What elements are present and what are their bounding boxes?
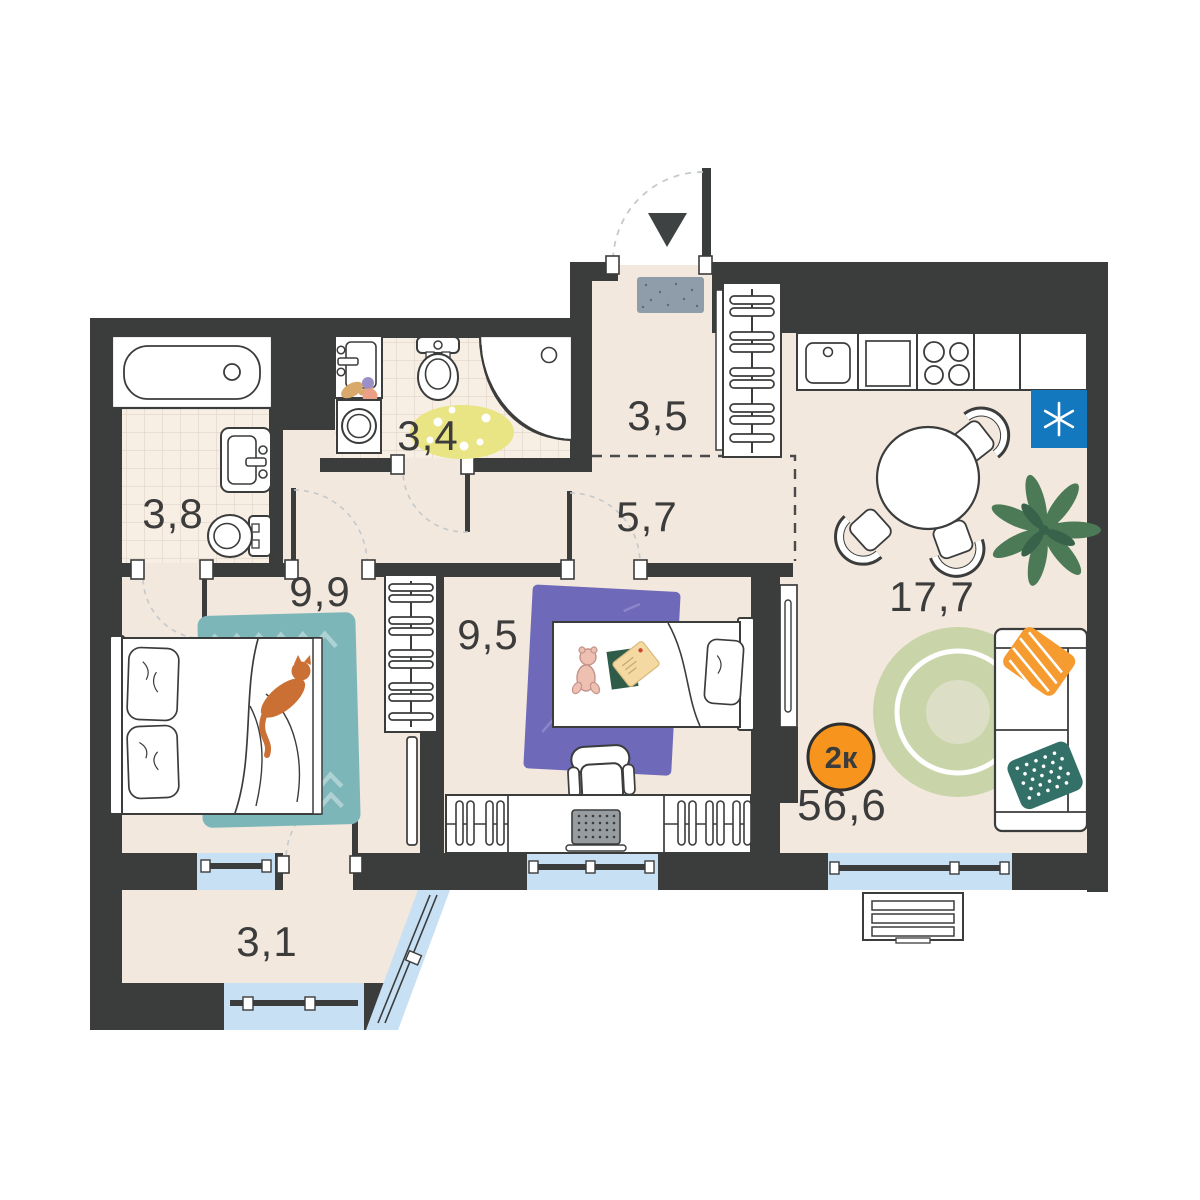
type-badge-label: 2к [825,740,858,775]
single-bed [553,618,754,730]
floorplan-svg: 3,8 3,4 3,5 5,7 9,9 9,5 17,7 3,1 2к 56,6 [0,0,1200,1200]
hall-wardrobe [716,283,781,457]
balcony-window [224,983,364,1030]
bedroom-door-leaf [291,488,296,565]
label-corridor: 5,7 [616,493,677,540]
ac-unit [863,893,963,943]
entrance-arrow-icon [648,213,687,247]
cutting-board [866,341,910,386]
label-entry-hall: 3,5 [627,392,688,439]
desk-chair [567,744,636,802]
pillow [704,639,744,705]
kids-room-door-leaf [567,491,572,565]
bathtub [112,336,272,408]
dining-table [877,427,979,529]
pillow [127,725,179,799]
kitchen-sink [806,343,850,383]
label-ensuite-bathroom: 3,8 [142,490,203,537]
kids-room-window [527,853,658,890]
bedroom-window [197,853,275,890]
label-bathroom: 3,4 [397,412,458,459]
laptop [566,810,626,851]
label-balcony: 3,1 [236,918,297,965]
label-kitchen-living: 17,7 [889,573,975,620]
label-bedroom: 9,9 [289,568,350,615]
toilet [208,515,271,557]
living-room-window [828,853,1012,890]
doormat [637,277,704,313]
tall-cabinet-handle [785,600,791,712]
floorplan-page: 3,8 3,4 3,5 5,7 9,9 9,5 17,7 3,1 2к 56,6 [0,0,1200,1200]
entrance-door-leaf [702,168,711,266]
fridge [1031,390,1087,448]
sink [221,428,271,492]
total-area-label: 56,6 [797,781,887,830]
bathroom-door-leaf [465,472,470,532]
washing-machine [337,400,381,453]
pillow [127,647,179,721]
toilet [417,337,459,400]
sofa [995,624,1087,831]
label-kids-room: 9,5 [457,611,518,658]
sink-cabinet [335,336,382,404]
mirror-panel [407,737,417,845]
desk [446,795,751,853]
double-bed [110,636,322,814]
